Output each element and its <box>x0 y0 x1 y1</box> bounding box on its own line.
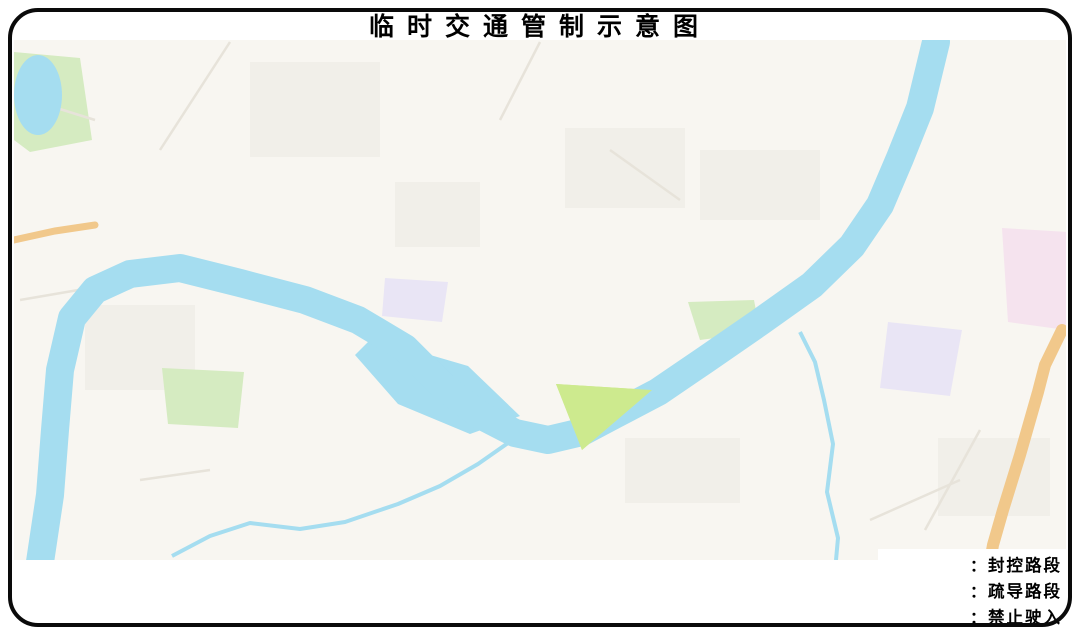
city-block <box>625 438 740 503</box>
legend-row-closed: ： 封控路段 <box>882 551 1067 577</box>
city-block <box>395 182 480 247</box>
legend-label-diversion: 疏导路段 <box>988 578 1062 602</box>
pink-area <box>1002 228 1068 330</box>
legend-row-diversion: ： 疏导路段 <box>882 577 1067 603</box>
no-entry-icon <box>882 605 966 627</box>
lavender-area <box>382 278 448 322</box>
legend-red-line-swatch <box>882 558 966 570</box>
city-block <box>565 128 685 208</box>
legend-separator: ： <box>970 604 986 628</box>
pond <box>14 55 62 135</box>
legend-label-no-entry: 禁止驶入 <box>988 604 1062 628</box>
city-block <box>250 62 380 157</box>
legend-blue-line-swatch <box>882 584 966 596</box>
map-canvas <box>0 0 1080 635</box>
lavender-area <box>880 322 962 396</box>
legend-label-closed: 封控路段 <box>988 552 1062 576</box>
map-layers <box>14 40 1068 562</box>
legend-separator: ： <box>970 578 986 602</box>
park-area <box>162 368 244 428</box>
page-title: 临时交通管制示意图 <box>0 7 1080 43</box>
city-block <box>700 150 820 220</box>
legend: ： 封控路段 ： 疏导路段 ： 禁止驶入 <box>878 549 1067 633</box>
legend-separator: ： <box>970 552 986 576</box>
legend-row-no-entry: ： 禁止驶入 <box>882 603 1067 629</box>
poster: 临时交通管制示意图 ： 封控路段 ： 疏导路段 ： 禁止驶入 <box>0 0 1080 635</box>
